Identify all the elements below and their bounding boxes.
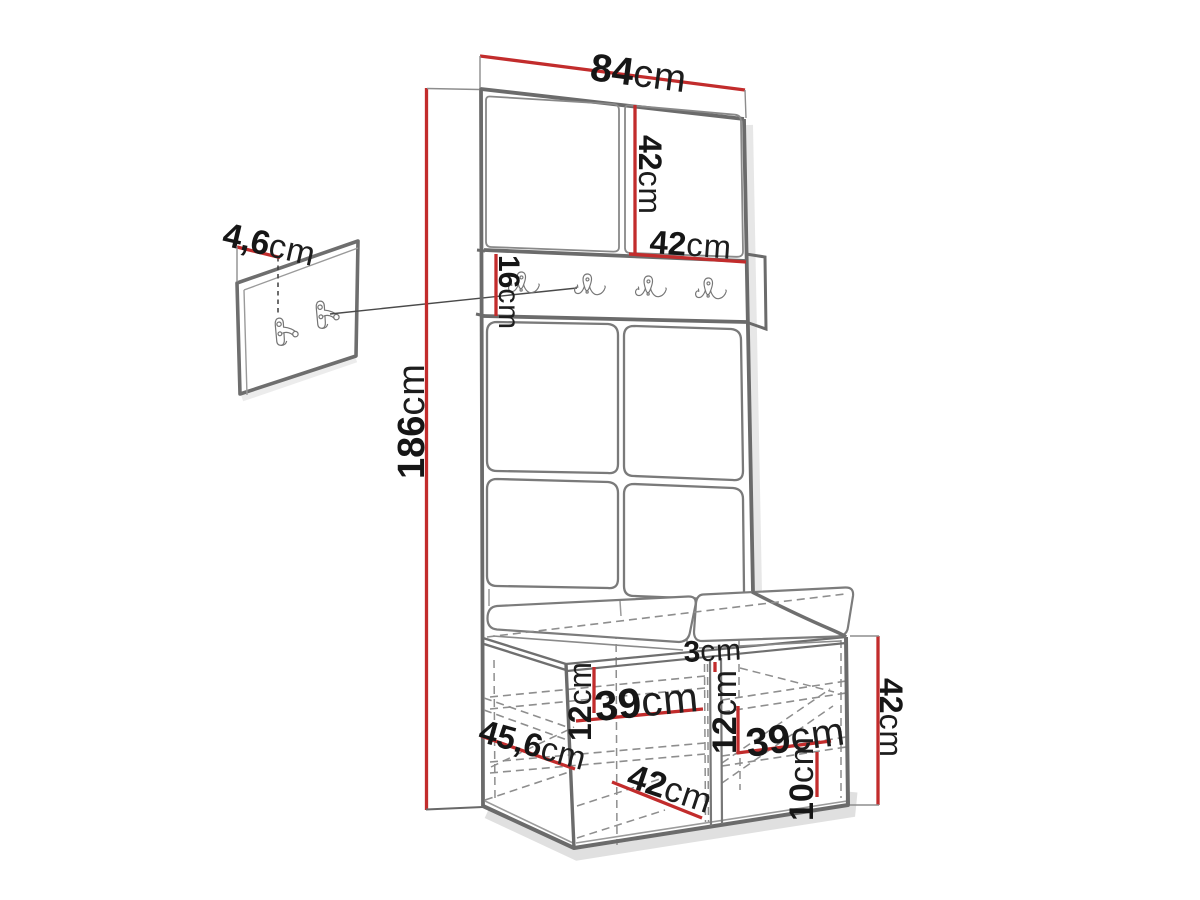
svg-text:42cm: 42cm [649, 223, 734, 266]
svg-text:3cm: 3cm [683, 633, 743, 669]
svg-text:12cm: 12cm [562, 661, 598, 741]
svg-text:10cm: 10cm [783, 736, 821, 821]
svg-text:42cm: 42cm [873, 678, 909, 758]
svg-text:42cm: 42cm [632, 135, 668, 215]
svg-text:16cm: 16cm [492, 255, 525, 330]
svg-text:12cm: 12cm [706, 669, 744, 754]
svg-text:39cm: 39cm [592, 673, 700, 730]
svg-text:186cm: 186cm [391, 363, 433, 479]
